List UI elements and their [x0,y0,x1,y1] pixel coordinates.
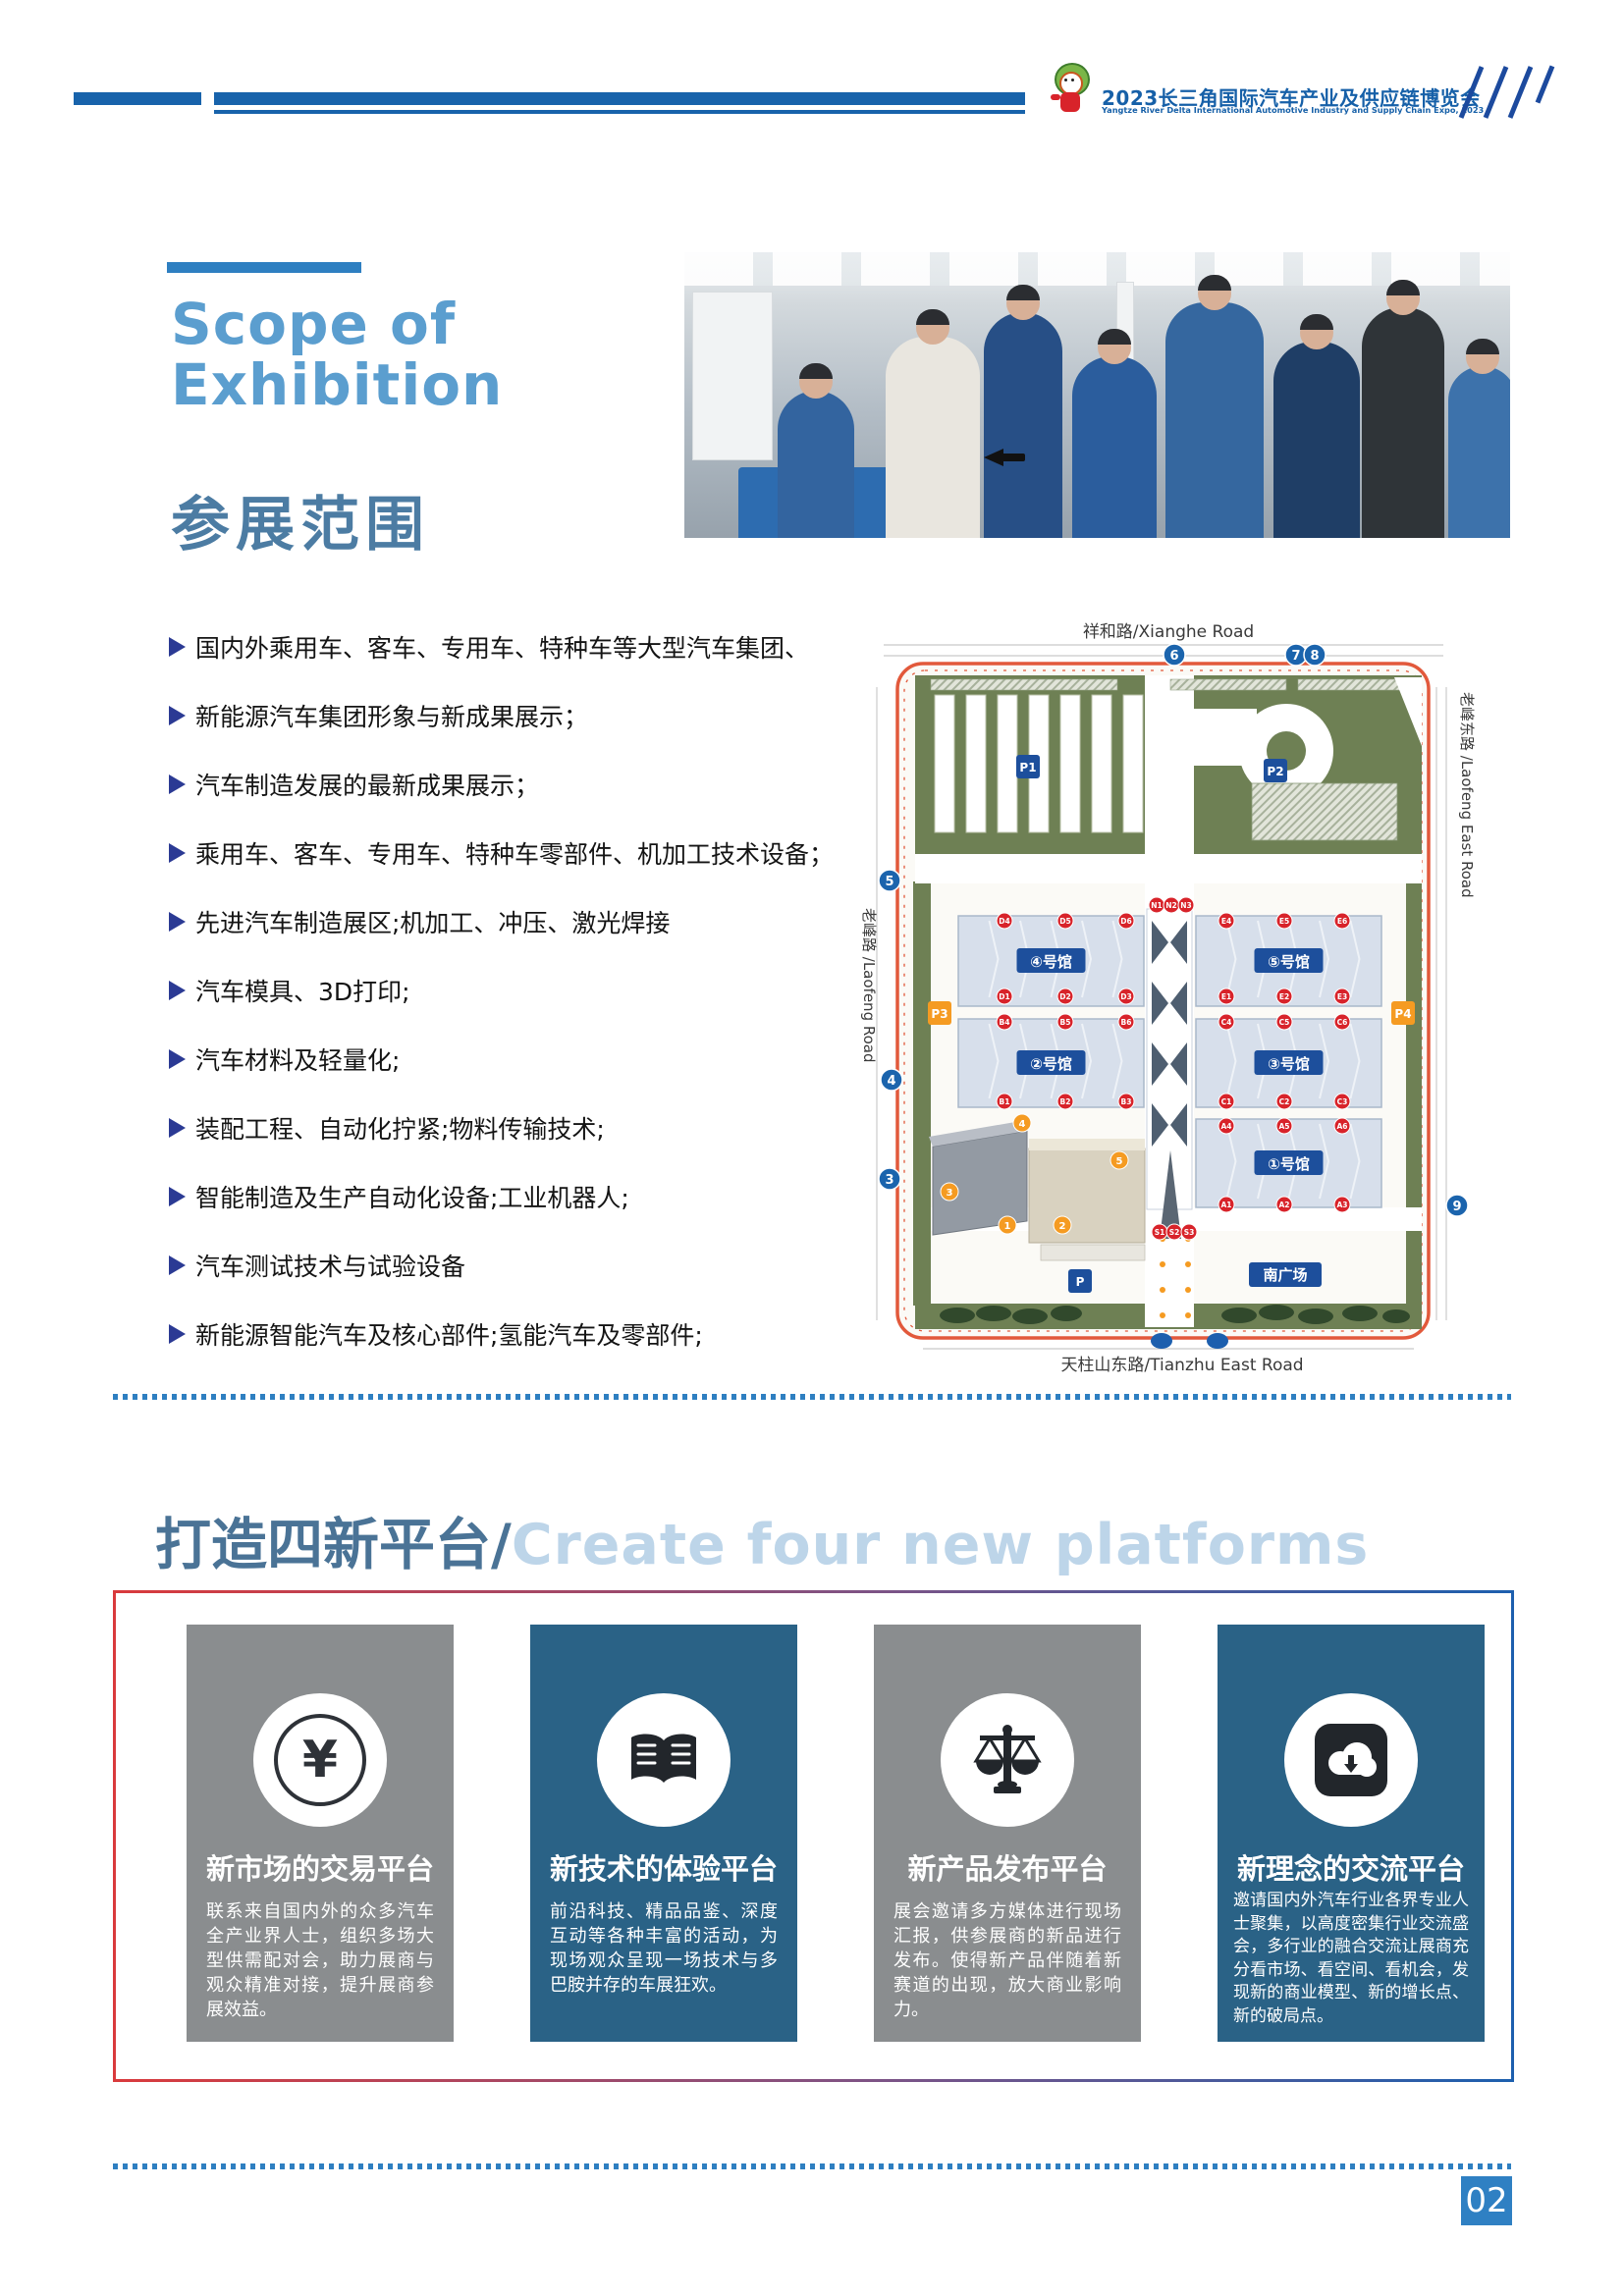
svg-text:E4: E4 [1221,917,1231,926]
bullet-text: 汽车制造发展的最新成果展示； [195,767,539,802]
platform-card-market: ¥ 新市场的交易平台 联系来自国内外的众多汽车全产业界人士，组织多场大型供需配对… [187,1625,454,2042]
photo-person [1072,356,1157,538]
svg-text:D2: D2 [1059,992,1070,1001]
scope-bullet-item: 汽车测试技术与试验设备 [169,1249,465,1282]
road-label-east: 老峰东路 /Laofeng East Road [1458,692,1476,898]
svg-text:D1: D1 [999,992,1009,1001]
svg-text:C1: C1 [1221,1097,1232,1106]
svg-text:E1: E1 [1221,992,1231,1001]
bullet-triangle-icon [169,981,186,1000]
scope-bullet-item: 新能源汽车集团形象与新成果展示； [169,699,588,732]
south-gate-dot [1151,1333,1172,1349]
svg-text:C4: C4 [1221,1018,1232,1027]
svg-text:P3: P3 [931,1007,947,1021]
card-title: 新理念的交流平台 [1218,1846,1485,1888]
svg-text:A6: A6 [1336,1122,1347,1131]
mascot-arm [1051,94,1060,100]
svg-text:N2: N2 [1165,901,1177,910]
header-slash-decor [1484,66,1509,119]
mascot-body [1060,92,1080,112]
svg-text:2: 2 [1059,1221,1066,1232]
svg-text:B6: B6 [1121,1018,1132,1027]
svg-text:P4: P4 [1394,1007,1411,1021]
svg-text:5: 5 [1116,1156,1123,1167]
svg-text:P2: P2 [1267,765,1283,778]
bullet-text: 国内外乘用车、客车、专用车、特种车等大型汽车集团、 [195,629,809,665]
platform-card-technology: 新技术的体验平台 前沿科技、精品品鉴、深度互动等各种丰富的活动，为现场观众呈现一… [530,1625,797,2042]
svg-text:D3: D3 [1120,992,1131,1001]
photo-person [1448,366,1510,538]
card-title: 新产品发布平台 [874,1846,1141,1888]
photo-display-panel [692,292,773,460]
svg-text:E5: E5 [1279,917,1289,926]
svg-text:D5: D5 [1059,917,1070,926]
svg-text:4: 4 [1019,1119,1026,1130]
scope-bullet-item: 汽车制造发展的最新成果展示； [169,768,539,801]
scope-bullet-item: 国内外乘用车、客车、专用车、特种车等大型汽车集团、 [169,630,809,664]
open-book-icon [597,1693,731,1827]
bullet-triangle-icon [169,1118,186,1138]
svg-text:B4: B4 [1000,1018,1010,1027]
platform-card-product: 新产品发布平台 展会邀请多方媒体进行现场汇报，供参展商的新品进行发布。使得新产品… [874,1625,1141,2042]
svg-text:9: 9 [1452,1200,1461,1214]
svg-text:B3: B3 [1121,1097,1132,1106]
cloud-download-icon [1284,1693,1418,1827]
svg-text:C3: C3 [1337,1097,1348,1106]
platforms-heading-en: Create four new platforms [512,1513,1370,1577]
mascot-eye [1071,79,1074,81]
svg-text:P: P [1076,1275,1085,1289]
photo-person [1165,302,1264,538]
scope-bullet-item: 汽车材料及轻量化; [169,1042,400,1076]
bullet-text: 汽车材料及轻量化; [195,1041,400,1077]
dotted-separator [113,2163,1511,2169]
exhibition-photo [684,252,1510,538]
road-label-west: 老峰路 /Laofeng Road [860,908,878,1063]
photo-person [1362,307,1444,538]
svg-text:N3: N3 [1180,901,1192,910]
svg-text:D6: D6 [1120,917,1131,926]
balance-scale-icon [941,1693,1074,1827]
plaza-label: 南广场 [1263,1266,1307,1284]
svg-text:6: 6 [1169,649,1178,664]
header-slash-decor [1508,66,1534,119]
hall-label: ②号馆 [1030,1055,1072,1073]
road-label-north: 祥和路/Xianghe Road [1083,622,1254,642]
bullet-triangle-icon [169,1187,186,1206]
section-title-en: Exhibition [171,351,503,418]
svg-text:E2: E2 [1279,992,1289,1001]
svg-text:A2: A2 [1278,1201,1289,1209]
scope-bullet-item: 先进汽车制造展区;机加工、冲压、激光焊接 [169,905,670,938]
svg-text:E3: E3 [1337,992,1347,1001]
svg-text:C6: C6 [1337,1018,1348,1027]
platforms-heading: 打造四新平台/Create four new platforms [155,1500,1369,1580]
hall-label: ⑤号馆 [1268,953,1310,971]
scope-bullet-item: 智能制造及生产自动化设备;工业机器人; [169,1180,629,1213]
bullet-text: 智能制造及生产自动化设备;工业机器人; [195,1179,629,1214]
south-gate-dot [1207,1333,1228,1349]
svg-text:5: 5 [885,875,893,889]
yuan-icon: ¥ [253,1693,387,1827]
hall-label: ①号馆 [1268,1155,1310,1173]
platform-card-concept: 新理念的交流平台 邀请国内外汽车行业各界专业人士聚集，以高度密集行业交流盛会，多… [1218,1625,1485,2042]
svg-text:C5: C5 [1279,1018,1290,1027]
svg-text:E6: E6 [1337,917,1347,926]
svg-text:A4: A4 [1220,1122,1231,1131]
photo-person [984,312,1062,538]
hall-label: ③号馆 [1268,1055,1310,1073]
bullet-triangle-icon [169,912,186,932]
cursor-arrow-icon [984,447,1027,468]
svg-text:S2: S2 [1169,1228,1180,1237]
scope-bullet-item: 新能源智能汽车及核心部件;氢能汽车及零部件; [169,1317,703,1351]
section-accent-bar [167,262,361,273]
cursor-arrow-tail [1000,454,1025,461]
platforms-heading-cn: 打造四新平台/ [155,1513,512,1577]
header-accent-underline [214,110,1025,114]
card-body: 邀请国内外汽车行业各界专业人士聚集，以高度密集行业交流盛会，多行业的融合交流让展… [1233,1890,1469,2028]
section-title-en: Scope of [171,291,456,357]
photo-person [1273,342,1360,538]
bullet-text: 汽车模具、3D打印; [195,973,410,1008]
venue-map: ④号馆⑤号馆②号馆③号馆①号馆 P1P2P3P4P N1N2N3D4D5D6E4… [839,604,1492,1389]
svg-text:3: 3 [947,1188,953,1199]
photo-ceiling-lights [684,252,1510,286]
expo-subtitle: Yangtze River Delta International Automo… [1102,105,1475,115]
card-title: 新市场的交易平台 [187,1846,454,1888]
svg-text:B5: B5 [1060,1018,1071,1027]
dotted-separator [113,1394,1511,1400]
bullet-text: 先进汽车制造展区;机加工、冲压、激光焊接 [195,904,670,939]
central-atrium [1147,909,1192,1239]
bullet-triangle-icon [169,1049,186,1069]
bullet-text: 新能源智能汽车及核心部件;氢能汽车及零部件; [195,1316,703,1352]
card-body: 展会邀请多方媒体进行现场汇报，供参展商的新品进行发布。使得新产品伴随着新赛道的出… [893,1899,1121,2022]
bullet-triangle-icon [169,706,186,725]
bullet-text: 汽车测试技术与试验设备 [195,1248,465,1283]
road-label-south: 天柱山东路/Tianzhu East Road [1060,1356,1303,1375]
mascot-eye [1064,79,1067,81]
svg-text:S3: S3 [1184,1228,1195,1237]
hall-label: ④号馆 [1030,953,1072,971]
bullet-text: 乘用车、客车、专用车、特种车零部件、机加工技术设备； [195,835,834,871]
bullet-triangle-icon [169,843,186,863]
photo-person [886,337,980,538]
svg-text:D4: D4 [999,917,1009,926]
header-accent-bar [74,92,201,105]
expo-mascot-logo [1049,63,1096,116]
svg-text:C2: C2 [1279,1097,1290,1106]
svg-text:1: 1 [1004,1221,1011,1232]
svg-text:8: 8 [1310,649,1319,664]
svg-text:S1: S1 [1155,1228,1165,1237]
svg-text:B2: B2 [1060,1097,1071,1106]
bullet-triangle-icon [169,774,186,794]
bullet-triangle-icon [169,1324,186,1344]
bullet-text: 新能源汽车集团形象与新成果展示； [195,698,588,733]
scope-bullet-item: 装配工程、自动化拧紧;物料传输技术; [169,1111,605,1145]
page-number-badge: 02 [1461,2176,1512,2225]
brochure-page: 2023长三角国际汽车产业及供应链博览会 Yangtze River Delta… [0,0,1624,2296]
svg-text:A5: A5 [1278,1122,1289,1131]
card-body: 联系来自国内外的众多汽车全产业界人士，组织多场大型供需配对会，助力展商与观众精准… [206,1899,434,2022]
card-title: 新技术的体验平台 [530,1846,797,1888]
svg-text:A3: A3 [1336,1201,1347,1209]
bullet-text: 装配工程、自动化拧紧;物料传输技术; [195,1110,605,1146]
photo-person [778,391,854,538]
svg-text:B1: B1 [1000,1097,1010,1106]
svg-text:7: 7 [1291,649,1300,664]
svg-text:N1: N1 [1151,901,1163,910]
scope-bullet-item: 乘用车、客车、专用车、特种车零部件、机加工技术设备； [169,836,834,870]
bullet-triangle-icon [169,1255,186,1275]
svg-text:4: 4 [887,1074,895,1089]
svg-text:P1: P1 [1019,761,1036,774]
scope-bullet-item: 汽车模具、3D打印; [169,974,410,1007]
card-body: 前沿科技、精品品鉴、深度互动等各种丰富的活动，为现场观众呈现一场技术与多巴胺并存… [550,1899,778,1998]
header-accent-bar [214,92,1025,105]
svg-text:3: 3 [885,1173,893,1188]
header-slash-decor [1536,66,1555,104]
bullet-triangle-icon [169,637,186,657]
svg-text:A1: A1 [1220,1201,1231,1209]
section-title-cn: 参展范围 [171,477,430,562]
